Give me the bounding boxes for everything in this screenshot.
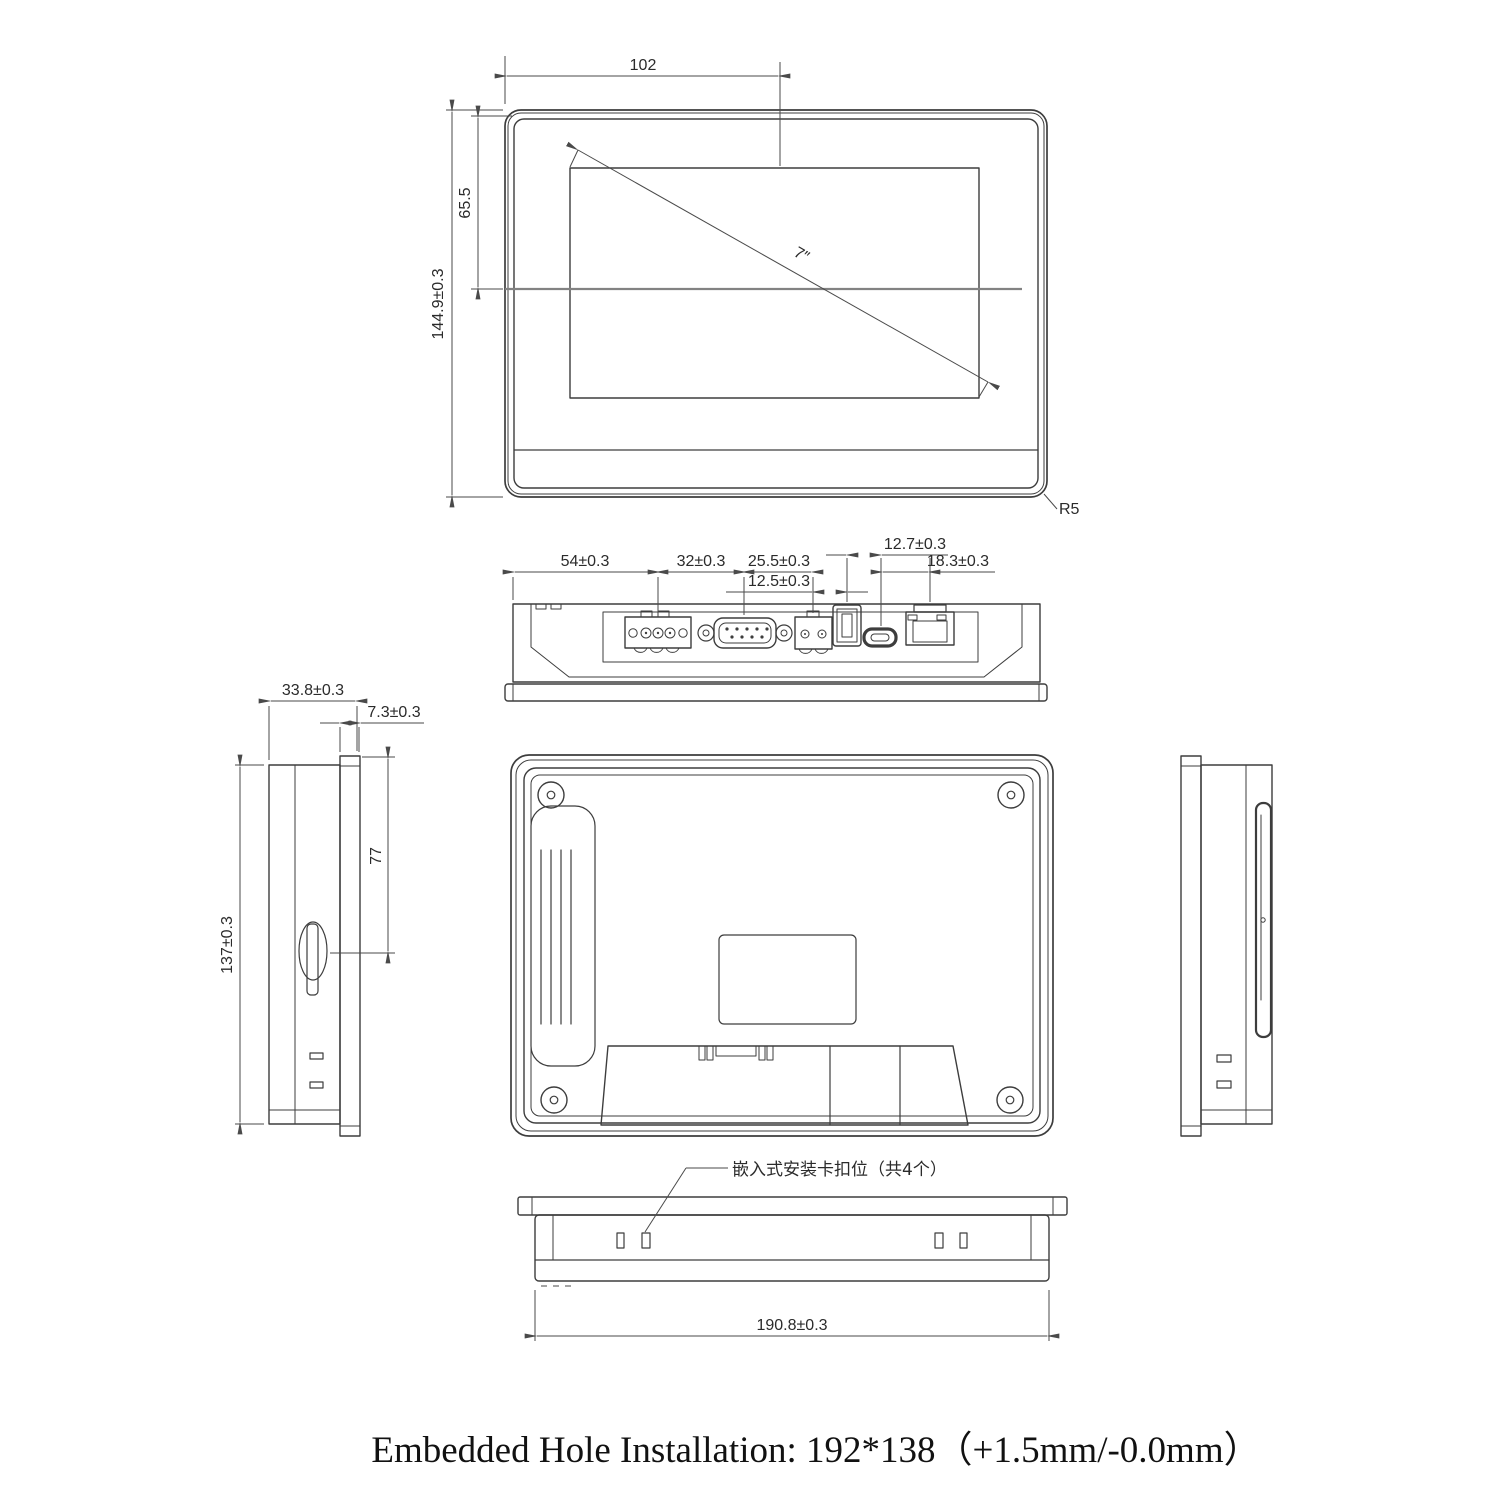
screw-hole-icon (538, 782, 564, 808)
dim-77: 77 (368, 847, 385, 865)
micro-usb-icon (864, 629, 896, 646)
dim-102: 102 (630, 57, 657, 74)
dim-137: 137±0.3 (219, 916, 236, 974)
terminal-2pin-icon (795, 611, 832, 653)
right-side-bezel (1181, 756, 1201, 1136)
mounting-clip-slot (642, 1233, 650, 1248)
usb-a-icon (833, 605, 861, 646)
mounting-clip-icon (1217, 1055, 1231, 1062)
bezel-edge (518, 1197, 1067, 1215)
dim-25-5: 25.5±0.3 (748, 553, 810, 570)
port-view-body (513, 604, 1040, 682)
diagonal-label: 7″ (791, 244, 812, 266)
right-side-view (1181, 756, 1272, 1136)
diagonal-line (578, 150, 988, 382)
drawing-sheet: 7″ 102 65.5 144.9±0.3 R5 (0, 0, 1500, 1500)
dim-65-5: 65.5 (457, 187, 474, 218)
dim-144-9: 144.9±0.3 (430, 268, 447, 339)
vent-icon (531, 806, 595, 1066)
bottom-ports-view: 12.7±0.3 54±0.3 32±0.3 25.5±0.3 18.3±0.3… (505, 536, 1047, 701)
dim-7-3: 7.3±0.3 (367, 704, 420, 721)
rj45-ethernet-icon (906, 605, 954, 645)
front-view: 7″ 102 65.5 144.9±0.3 R5 (430, 56, 1080, 518)
mounting-clip-icon (310, 1053, 323, 1059)
left-side-bezel (340, 756, 360, 1136)
screw-hole-icon (997, 1087, 1023, 1113)
display-area (570, 168, 979, 398)
rear-view (511, 755, 1053, 1136)
db9-serial-icon (698, 618, 792, 648)
label-recess (719, 935, 856, 1024)
left-side-view: 33.8±0.3 7.3±0.3 77 137±0.3 (219, 682, 424, 1136)
dim-32: 32±0.3 (677, 553, 726, 570)
dim-12-7: 12.7±0.3 (884, 536, 946, 553)
dim-12-5: 12.5±0.3 (748, 573, 810, 590)
rear-outline (511, 755, 1053, 1136)
screw-hole-icon (541, 1087, 567, 1113)
side-vent-slot-icon (1256, 803, 1271, 1037)
power-terminal-icon (625, 611, 691, 652)
connector-recess (601, 1046, 968, 1125)
top-edge-view: 嵌入式安装卡扣位（共4个） 190.8±0.3 (518, 1160, 1067, 1341)
sd-card-slot-icon (299, 922, 327, 995)
mounting-clip-icon (1217, 1081, 1231, 1088)
dim-33-8: 33.8±0.3 (282, 682, 344, 699)
dim-18-3: 18.3±0.3 (927, 553, 989, 570)
mounting-clip-slot (617, 1233, 624, 1248)
mounting-clip-slot (960, 1233, 967, 1248)
left-side-body (269, 765, 340, 1124)
dimension-drawing: 7″ 102 65.5 144.9±0.3 R5 (0, 0, 1500, 1500)
dim-54: 54±0.3 (561, 553, 610, 570)
bezel-edge (505, 684, 1047, 701)
clip-note: 嵌入式安装卡扣位（共4个） (732, 1160, 947, 1180)
dim-190-8: 190.8±0.3 (756, 1317, 827, 1334)
caption: Embedded Hole Installation: 192*138（+1.5… (371, 1430, 1260, 1471)
corner-radius-label: R5 (1059, 501, 1080, 518)
top-edge-body (535, 1215, 1049, 1281)
screw-hole-icon (998, 782, 1024, 808)
mounting-clip-slot (935, 1233, 943, 1248)
mounting-clip-icon (310, 1082, 323, 1088)
